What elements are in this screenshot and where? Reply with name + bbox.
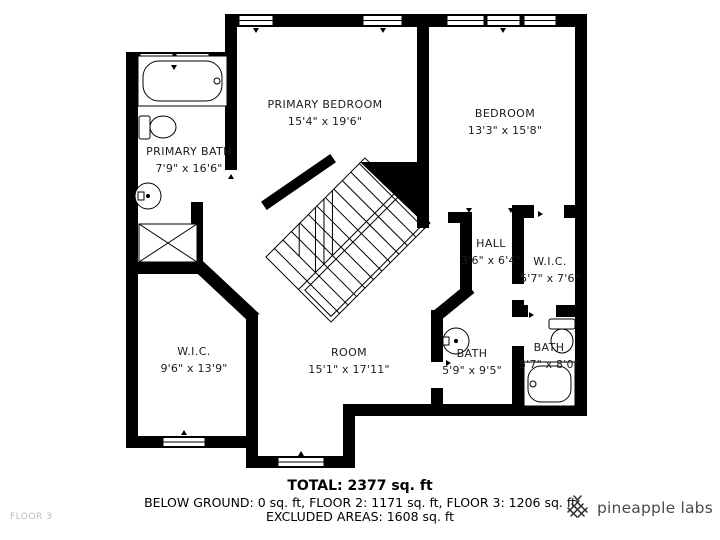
wall-hall-top-stub [448,212,472,223]
wall-wic-top-a [512,205,534,218]
stair-landing-cross [283,191,365,273]
shower-icon [139,224,197,262]
room-label-wic-upper: W.I.C. 5'7" x 7'6" [520,253,580,287]
room-label-hall: HALL 3'6" x 6'4" [461,235,521,269]
bathtub-icon [138,56,227,106]
stair-rail [299,191,398,290]
excluded-areas-text: EXCLUDED AREAS: 1608 sq. ft [266,509,454,524]
room-dims: 15'1" x 17'11" [308,361,389,378]
floor-number-tag: FLOOR 3 [10,512,52,522]
brand-logo: pineapple labs [564,494,713,521]
room-dims: 13'3" x 15'8" [468,122,542,139]
room-dims: 3'6" x 6'4" [461,252,521,269]
window [447,16,484,26]
brand-name: pineapple labs [597,499,713,517]
room-name: BEDROOM [468,105,542,122]
room-dims: 5'7" x 7'6" [520,270,580,287]
window [524,16,556,26]
room-name: BATH [442,345,502,362]
room-name: PRIMARY BATH [146,143,232,160]
room-dims: 5'9" x 9'5" [442,362,502,379]
toilet-icon [139,116,176,139]
sink-icon [135,183,161,209]
room-name: W.I.C. [520,253,580,270]
pineapple-lattice-icon [564,494,591,521]
room-label-bath-left: BATH 5'9" x 9'5" [442,345,502,379]
wall-diagonal-stair-left [268,161,329,203]
wall-wic-bottom-b [556,305,587,317]
wall-wic-bottom-a [512,305,528,317]
room-name: HALL [461,235,521,252]
window [363,16,402,26]
room-label-primary-bath: PRIMARY BATH 7'9" x 16'6" [146,143,232,177]
wall-diagonal-bath [203,270,250,314]
room-label-bedroom: BEDROOM 13'3" x 15'8" [468,105,542,139]
room-name: PRIMARY BEDROOM [267,96,382,113]
window [278,458,324,467]
stair-inner-outline [305,197,425,317]
wall-left [126,52,138,448]
room-name: BATH [519,339,579,356]
room-name: ROOM [308,344,389,361]
room-label-room: ROOM 15'1" x 17'11" [308,344,389,378]
wall-diagonal-bath-left [439,292,466,314]
room-label-primary-bedroom: PRIMARY BEDROOM 15'4" x 19'6" [267,96,382,130]
wall-bathleft-lower [431,388,443,416]
window [239,16,273,26]
room-dims: 5'7" x 8'0" [519,356,579,373]
floor-plan-page: PRIMARY BEDROOM 15'4" x 19'6" BEDROOM 13… [0,0,720,540]
room-dims: 9'6" x 13'9" [160,360,227,377]
room-name: W.I.C. [160,343,227,360]
window [487,16,520,26]
wall-wic-lower-right [246,312,258,448]
wall-wic-top-b [564,205,587,218]
room-label-wic-lower: W.I.C. 9'6" x 13'9" [160,343,227,377]
wall-shower-bottom [126,262,203,274]
room-label-bath-right: BATH 5'7" x 8'0" [519,339,579,373]
total-area-text: TOTAL: 2377 sq. ft [287,478,432,494]
floor-plan-drawing [0,0,720,540]
room-dims: 15'4" x 19'6" [267,113,382,130]
room-dims: 7'9" x 16'6" [146,160,232,177]
floor-areas-text: BELOW GROUND: 0 sq. ft, FLOOR 2: 1171 sq… [144,495,576,510]
window [163,438,205,447]
